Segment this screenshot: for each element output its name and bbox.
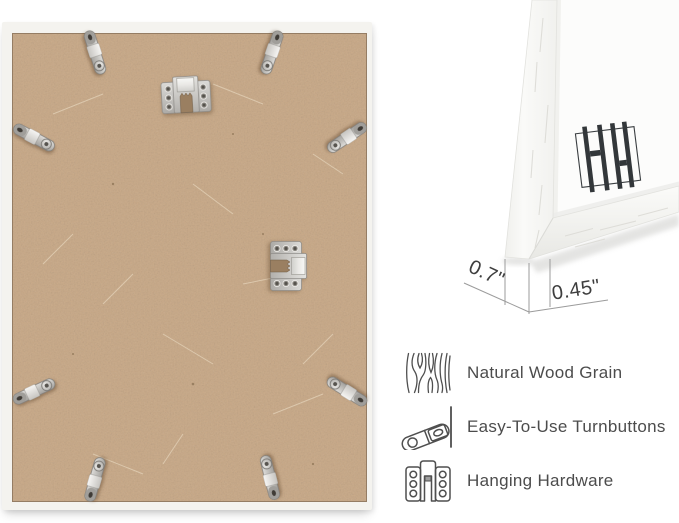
feature-label: Easy-To-Use Turnbuttons [467, 417, 666, 437]
feature-row: Easy-To-Use Turnbuttons [399, 403, 671, 451]
product-image: 0.7" 0.45" Natural Wood G [0, 0, 679, 523]
feature-row: Natural Wood Grain [399, 349, 671, 397]
frame-back-photo [2, 22, 372, 510]
face-width-measurement-label: 0.45" [550, 275, 601, 304]
frame-corner-photo: 0.7" 0.45" [440, 0, 679, 330]
wood-grain-icon [399, 349, 457, 397]
feature-label: Hanging Hardware [467, 471, 614, 491]
mat-board [553, 0, 679, 218]
sawtooth-hanger-top [160, 74, 212, 117]
hanging-hardware-icon [399, 457, 457, 505]
feature-row: Hanging Hardware [399, 457, 671, 505]
frame-moulding-left [505, 0, 557, 259]
feature-list: Natural Wood Grain Easy-To-Use Turnbutto… [399, 349, 671, 511]
feature-label: Natural Wood Grain [467, 363, 622, 383]
sawtooth-hanger-side [268, 241, 308, 291]
turnbutton-icon [399, 403, 457, 451]
